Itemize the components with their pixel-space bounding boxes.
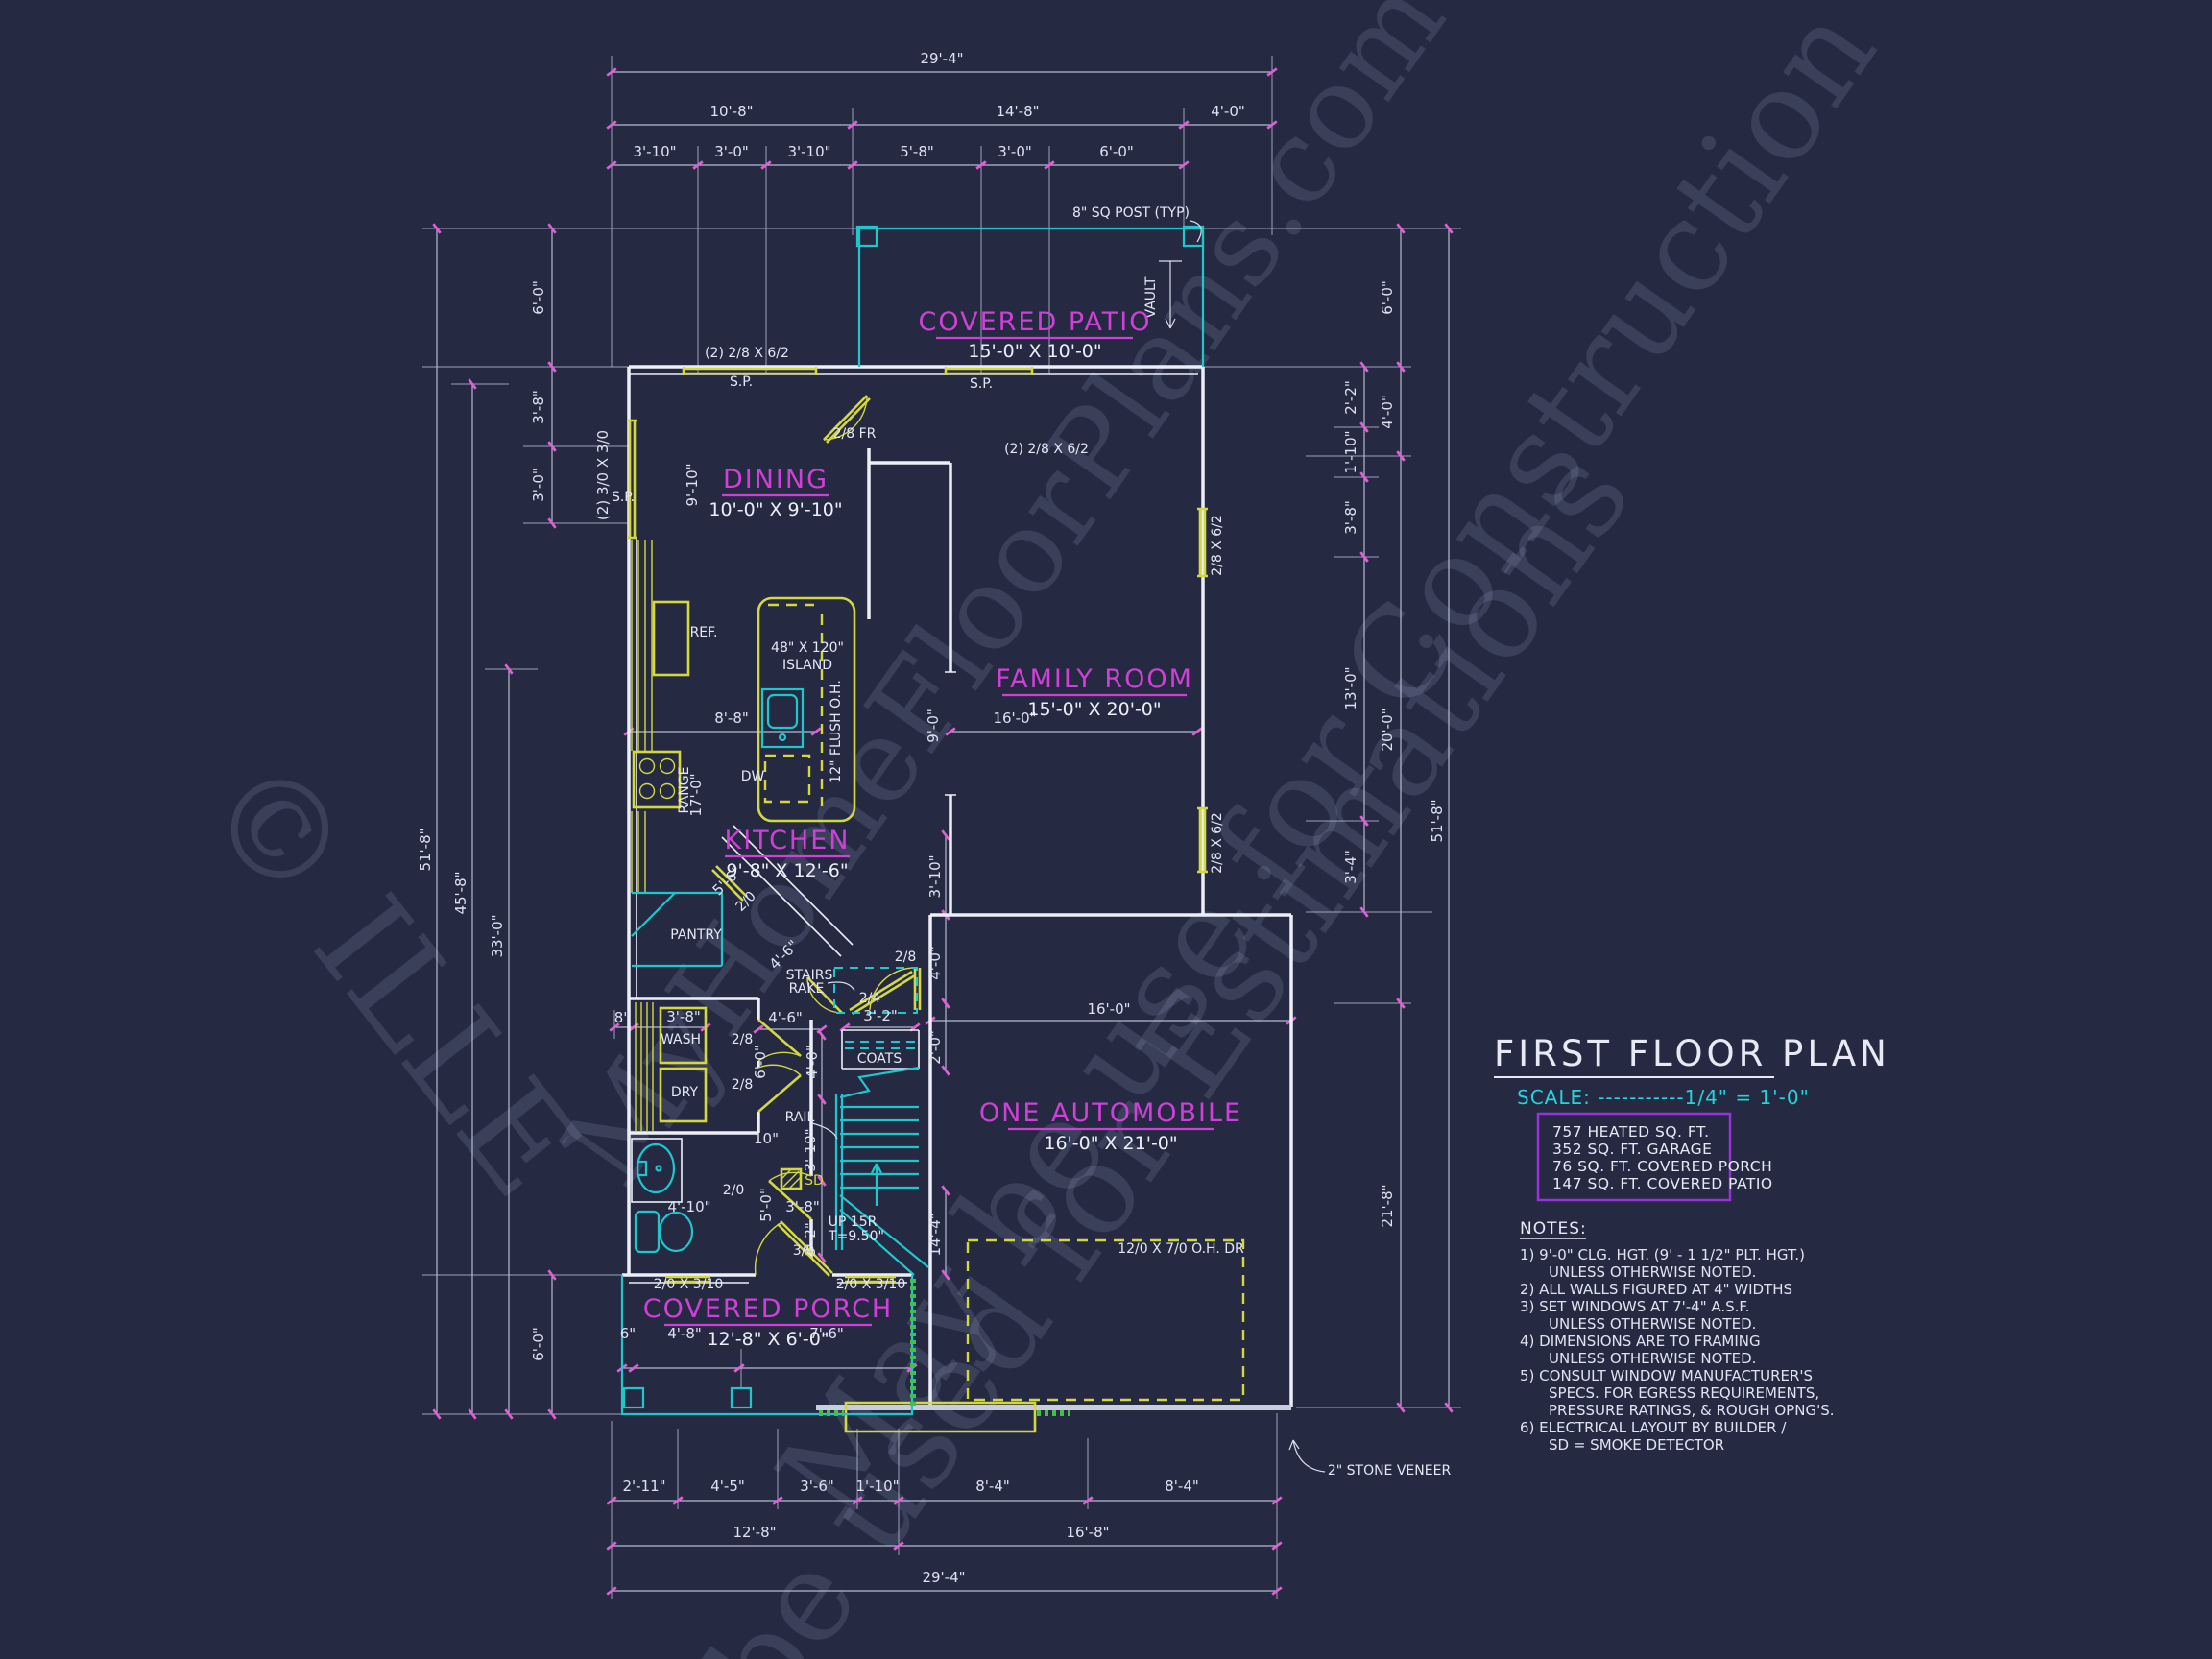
dim-label: 51'-8"	[1429, 799, 1446, 842]
dim-label: 6"	[620, 1325, 636, 1342]
dim-label: 21'-8"	[1379, 1184, 1396, 1227]
dim-label: 6'-0"	[1379, 280, 1396, 315]
dim-label: 8"	[614, 1009, 630, 1026]
title-block: FIRST FLOOR PLAN SCALE: -----------1/4" …	[1494, 1033, 1890, 1200]
note-line: 2) ALL WALLS FIGURED AT 4" WIDTHS	[1520, 1281, 1792, 1298]
dim-label: 4'-0"	[926, 946, 944, 980]
area-line: 757 HEATED SQ. FT.	[1552, 1123, 1710, 1141]
dim-label: 3'-8"	[530, 390, 547, 424]
window-size-label: (2) 3/0 X 3/0	[594, 430, 612, 520]
dim-label: 4'-0"	[1211, 103, 1245, 120]
stone-veneer-label: 2" STONE VENEER	[1328, 1463, 1452, 1479]
floor-plan-canvas: 29'-4" 10'-8" 14'-8" 4'-0" 3'-10" 3'-0" …	[0, 0, 2212, 1659]
window-size-label: (2) 2/8 X 6/2	[1004, 442, 1089, 457]
sp-label: S.P.	[612, 490, 635, 505]
dim-label: 33'-0"	[489, 914, 506, 957]
island-size-label: 48" X 120"	[771, 640, 844, 656]
dim-label: 2'-0"	[926, 1030, 944, 1065]
door-size-label: 2/0	[733, 889, 759, 915]
dim-label: 3'-2"	[863, 1007, 898, 1024]
window-size-label: (2) 2/8 X 6/2	[705, 346, 789, 361]
dim-label: 29'-4"	[922, 1569, 965, 1586]
dim-label: 3'-6"	[800, 1478, 834, 1495]
dim-label: 9'-0"	[925, 709, 942, 743]
room-size: 9'-8" X 12'-6"	[726, 860, 848, 881]
washer-label: WASH	[661, 1032, 701, 1047]
dim-label: 3'-10"	[802, 1128, 819, 1171]
note-line: 3) SET WINDOWS AT 7'-4" A.S.F.	[1520, 1298, 1749, 1315]
room-label-kitchen: KITCHEN	[725, 826, 851, 855]
door-size-label: 2/8	[732, 1032, 754, 1047]
dim-label: 3'-4"	[1342, 850, 1359, 884]
dim-label: 8'-4"	[975, 1478, 1010, 1495]
dim-label: 3'-10"	[787, 143, 830, 160]
scale-text: SCALE: -----------1/4" = 1'-0"	[1517, 1086, 1810, 1109]
stairs-rake-label: RAKE	[789, 981, 825, 997]
window-size-label: 2/0 X 3/10	[836, 1277, 905, 1292]
sp-label: S.P.	[730, 374, 753, 390]
area-line: 352 SQ. FT. GARAGE	[1552, 1141, 1712, 1158]
dim-label: 3'-0"	[998, 143, 1032, 160]
notes-block: NOTES: 1) 9'-0" CLG. HGT. (9' - 1 1/2" P…	[1520, 1219, 1835, 1454]
room-size: 16'-0" X 21'-0"	[1044, 1133, 1177, 1154]
window-size-label: 2/8 X 6/2	[1210, 812, 1225, 874]
flush-overhang-label: 12" FLUSH O.H.	[829, 680, 844, 783]
cyan-elements	[622, 227, 1203, 1414]
note-line: SPECS. FOR EGRESS REQUIREMENTS,	[1549, 1384, 1819, 1402]
dim-label: 4'-6"	[768, 1009, 803, 1026]
room-size: 15'-0" X 20'-0"	[1027, 699, 1161, 720]
note-line: PRESSURE RATINGS, & ROUGH OPNG'S.	[1549, 1402, 1835, 1419]
room-label-dining: DINING	[723, 465, 829, 494]
dim-label: 2'-2"	[1342, 380, 1359, 415]
sp-label: S.P.	[970, 376, 993, 392]
kitchen-sink	[762, 689, 803, 747]
note-line: 5) CONSULT WINDOW MANUFACTURER'S	[1520, 1367, 1813, 1384]
vault-arrow	[1159, 261, 1182, 328]
porch-post	[732, 1388, 751, 1407]
dim-label: 4'-10"	[667, 1198, 710, 1215]
dim-label: 6'-0"	[1099, 143, 1134, 160]
dim-label: 4'-0"	[804, 1045, 821, 1079]
dim-label: 16'-8"	[1066, 1524, 1109, 1541]
porch-post	[624, 1388, 643, 1407]
dim-label: 3'-8"	[785, 1198, 820, 1215]
dim-label: 51'-8"	[417, 828, 434, 871]
dim-label: 45'-8"	[452, 871, 469, 914]
dim-label: 3'-0"	[530, 468, 547, 502]
dim-label: 5'-8"	[900, 143, 934, 160]
note-line: UNLESS OTHERWISE NOTED.	[1549, 1263, 1756, 1281]
dim-label: 29'-4"	[920, 50, 963, 67]
dim-label: 12'-8"	[733, 1524, 776, 1541]
blueprint-page: MyHomeFloorPlans.com May be use for Cons…	[0, 0, 2212, 1659]
room-size: 15'-0" X 10'-0"	[968, 341, 1101, 362]
dim-label: 6'-0"	[530, 280, 547, 315]
window-size-label: 2/0 X 3/10	[654, 1277, 723, 1292]
stair-up-label: UP 15R	[829, 1214, 878, 1230]
smoke-detector-label: SD	[805, 1173, 824, 1189]
note-line: UNLESS OTHERWISE NOTED.	[1549, 1315, 1756, 1333]
door-size-label: 2/8 FR	[833, 426, 877, 442]
island-label: ISLAND	[782, 658, 832, 673]
extension-lines	[422, 56, 1461, 1599]
dim-label: 16'-0"	[1087, 1000, 1130, 1018]
sheet-title: FIRST FLOOR PLAN	[1494, 1033, 1890, 1074]
post-note: 8" SQ POST (TYP)	[1072, 205, 1190, 221]
dim-label: 3'-8"	[666, 1008, 701, 1025]
dim-label: 8'-8"	[714, 709, 749, 727]
dim-label: 20'-0"	[1379, 708, 1396, 751]
coats-closet-label: COATS	[857, 1051, 902, 1067]
room-label-covered-patio: COVERED PATIO	[919, 307, 1152, 337]
area-line: 76 SQ. FT. COVERED PORCH	[1552, 1158, 1772, 1175]
area-line: 147 SQ. FT. COVERED PATIO	[1552, 1175, 1773, 1192]
dim-label: 3'-0"	[714, 143, 749, 160]
dim-label: 3'-10"	[926, 854, 944, 898]
dim-label: 14'-4"	[926, 1213, 944, 1256]
dim-label: 10'-8"	[709, 103, 753, 120]
dim-label: 6'-0"	[752, 1045, 769, 1079]
dim-label: 4'-0"	[1379, 395, 1396, 429]
rail-label: RAIL	[785, 1110, 815, 1125]
note-line: 1) 9'-0" CLG. HGT. (9' - 1 1/2" PLT. HGT…	[1520, 1246, 1805, 1263]
room-size: 12'-8" X 6'-0"	[707, 1329, 829, 1350]
dim-label: 10"	[754, 1130, 779, 1147]
dim-label: 4'-5"	[710, 1478, 745, 1495]
dim-label: 3'-10"	[633, 143, 676, 160]
room-label-one-automobile: ONE AUTOMOBILE	[979, 1098, 1242, 1128]
room-size: 10'-0" X 9'-10"	[709, 499, 842, 520]
dim-label: 13'-0"	[1342, 666, 1359, 709]
door-size-label: 2/8	[895, 950, 917, 965]
room-label-covered-porch: COVERED PORCH	[643, 1294, 893, 1324]
dim-label: 6'-0"	[530, 1327, 547, 1361]
dim-label: 5'-0"	[757, 1188, 775, 1222]
garage-door-label: 12/0 X 7/0 O.H. DR	[1118, 1241, 1244, 1257]
door-size-label: 2/8	[732, 1077, 754, 1093]
pantry-label: PANTRY	[670, 927, 722, 943]
dryer-label: DRY	[671, 1085, 699, 1100]
dim-label: 14'-8"	[996, 103, 1039, 120]
note-line: 6) ELECTRICAL LAYOUT BY BUILDER /	[1520, 1419, 1787, 1436]
dimension-lines	[437, 72, 1449, 1591]
stair-tread-label: T=9.50"	[828, 1229, 884, 1244]
note-line: UNLESS OTHERWISE NOTED.	[1549, 1350, 1756, 1367]
dishwasher-label: DW	[741, 769, 765, 784]
door-size-label: 2/0	[723, 1183, 745, 1198]
dim-label: 1'-10"	[1342, 430, 1359, 473]
door-size-label: 3/0	[793, 1243, 815, 1259]
notes-heading: NOTES:	[1520, 1219, 1587, 1238]
note-line: 4) DIMENSIONS ARE TO FRAMING	[1520, 1333, 1761, 1350]
dim-label: 3'-8"	[1342, 500, 1359, 535]
room-label-family-room: FAMILY ROOM	[996, 664, 1193, 694]
note-line: SD = SMOKE DETECTOR	[1549, 1436, 1724, 1454]
dim-label: 9'-10"	[684, 463, 701, 506]
door-size-label: 2/4	[859, 991, 881, 1006]
dim-label: 4'-8"	[667, 1325, 702, 1342]
dim-label: 1'-10"	[855, 1478, 899, 1495]
refrigerator-label: REF.	[690, 625, 718, 640]
range-label: RANGE	[677, 767, 692, 814]
window-size-label: 2/8 X 6/2	[1210, 515, 1225, 576]
dim-label: 8'-4"	[1165, 1478, 1199, 1495]
dim-label: 2'-11"	[622, 1478, 665, 1495]
